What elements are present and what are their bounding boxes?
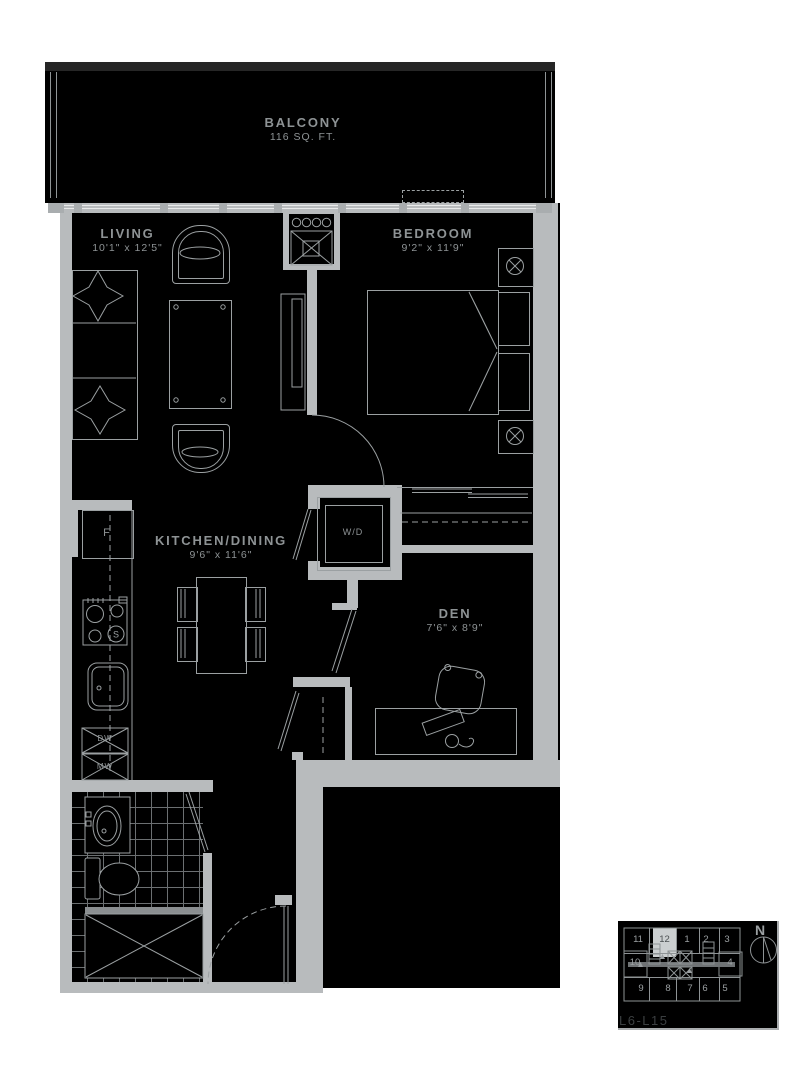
wd-closet-door	[293, 509, 311, 560]
tub-ledge	[85, 907, 203, 914]
floor-range-text: L6-L15	[619, 1013, 668, 1028]
balcony-name: BALCONY	[230, 115, 376, 130]
kitchen-label: KITCHEN/DINING 9'6" x 11'6"	[150, 533, 292, 561]
sofa-detail	[72, 271, 136, 434]
fireplace-detail	[291, 218, 332, 265]
den-dims: 7'6" x 8'9"	[385, 622, 525, 634]
microwave-tag: MW	[82, 762, 128, 771]
bedroom-label: BEDROOM 9'2" x 11'9"	[363, 226, 503, 254]
floor-plan-page: BALCONY 116 SQ. FT.	[0, 0, 800, 1072]
desk-accessory	[446, 735, 459, 748]
kitchen-sink	[88, 663, 128, 710]
kitchen-dims: 9'6" x 11'6"	[150, 549, 292, 561]
tv-media-unit	[281, 294, 305, 410]
keyplan-unit-9: 9	[632, 983, 650, 994]
washer-dryer-tag: W/D	[323, 527, 383, 537]
kitchen-name: KITCHEN/DINING	[150, 533, 292, 548]
balcony-label: BALCONY 116 SQ. FT.	[230, 115, 376, 143]
keyplan-unit-2: 2	[698, 934, 714, 945]
hall-closet-door	[278, 691, 323, 755]
bedroom-name: BEDROOM	[363, 226, 503, 241]
keyplan-unit-6: 6	[696, 983, 714, 994]
keyplan-unit-10: 10	[626, 957, 644, 968]
north-label: N	[755, 922, 765, 938]
coffee-table-bolts	[174, 305, 225, 402]
bedroom-door-swing	[312, 415, 384, 487]
living-name: LIVING	[60, 226, 195, 241]
toilet-tank	[85, 858, 100, 899]
den-label: DEN 7'6" x 8'9"	[385, 606, 525, 634]
sofa-pillow-bottom	[75, 386, 125, 434]
cooktop: S	[83, 597, 127, 645]
desk-chair	[434, 663, 487, 715]
keyplan-unit-1: 1	[679, 934, 695, 945]
living-dims: 10'1" x 12'5"	[60, 242, 195, 254]
bedroom-closet-doors	[400, 489, 532, 522]
nightstand-lamp-bottom-icon	[507, 428, 524, 445]
north-compass-icon	[751, 937, 777, 963]
keyplan-unit-12-highlighted: 12	[653, 934, 676, 945]
fridge-tag: F	[82, 527, 132, 539]
stove-burner-s: S	[113, 630, 119, 640]
vanity	[85, 797, 130, 853]
bathroom-fixtures	[85, 797, 203, 978]
toilet-bowl	[99, 863, 139, 895]
dining-chair-hatch	[181, 589, 260, 658]
living-label: LIVING 10'1" x 12'5"	[60, 226, 195, 254]
armchair-cushions	[180, 247, 220, 457]
keyplan-unit-8: 8	[659, 983, 677, 994]
keyplan-unit-5: 5	[716, 983, 734, 994]
bathroom-door	[186, 792, 208, 852]
bed-duvet-folds	[469, 292, 497, 411]
sofa-pillow-top	[73, 271, 123, 321]
nightstand-lamp-top-icon	[507, 258, 524, 275]
laptop	[422, 710, 464, 736]
den-door	[332, 609, 356, 673]
keyplan-unit-11: 11	[629, 934, 647, 945]
den-name: DEN	[385, 606, 525, 621]
keyplan-unit-4: 4	[722, 957, 738, 968]
dishwasher-tag: DW	[82, 734, 128, 743]
keyplan-unit-3: 3	[719, 934, 735, 945]
balcony-area-text: 116 SQ. FT.	[230, 131, 376, 143]
bedroom-dims: 9'2" x 11'9"	[363, 242, 503, 254]
entry-door-swing	[208, 906, 288, 984]
den-furniture	[422, 663, 486, 747]
